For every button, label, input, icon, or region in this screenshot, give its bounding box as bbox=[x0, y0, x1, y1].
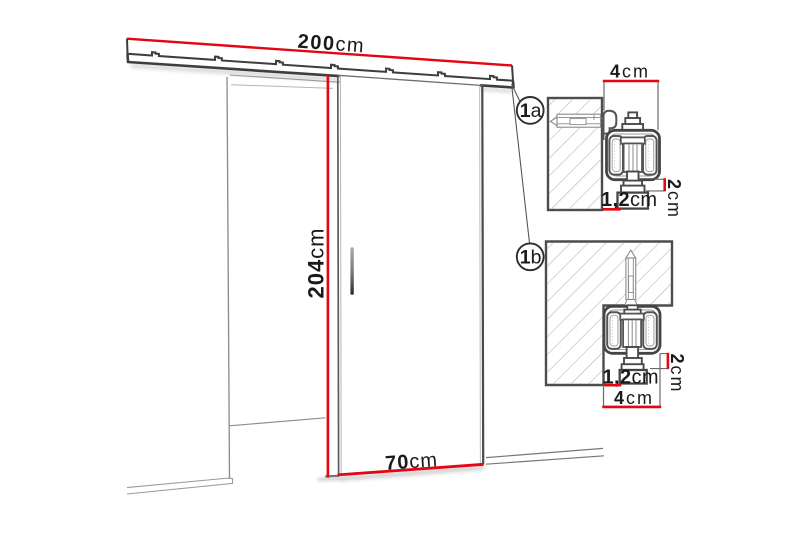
svg-text:1a: 1a bbox=[520, 100, 542, 122]
svg-text:70cm: 70cm bbox=[384, 449, 438, 475]
svg-text:4cm: 4cm bbox=[610, 62, 650, 82]
svg-text:1,2cm: 1,2cm bbox=[601, 189, 657, 211]
svg-text:1b: 1b bbox=[520, 247, 542, 269]
svg-text:2cm: 2cm bbox=[664, 179, 684, 219]
svg-text:204cm: 204cm bbox=[304, 227, 329, 298]
svg-text:200cm: 200cm bbox=[297, 31, 366, 58]
svg-text:2cm: 2cm bbox=[667, 354, 687, 394]
svg-text:4cm: 4cm bbox=[614, 388, 654, 408]
